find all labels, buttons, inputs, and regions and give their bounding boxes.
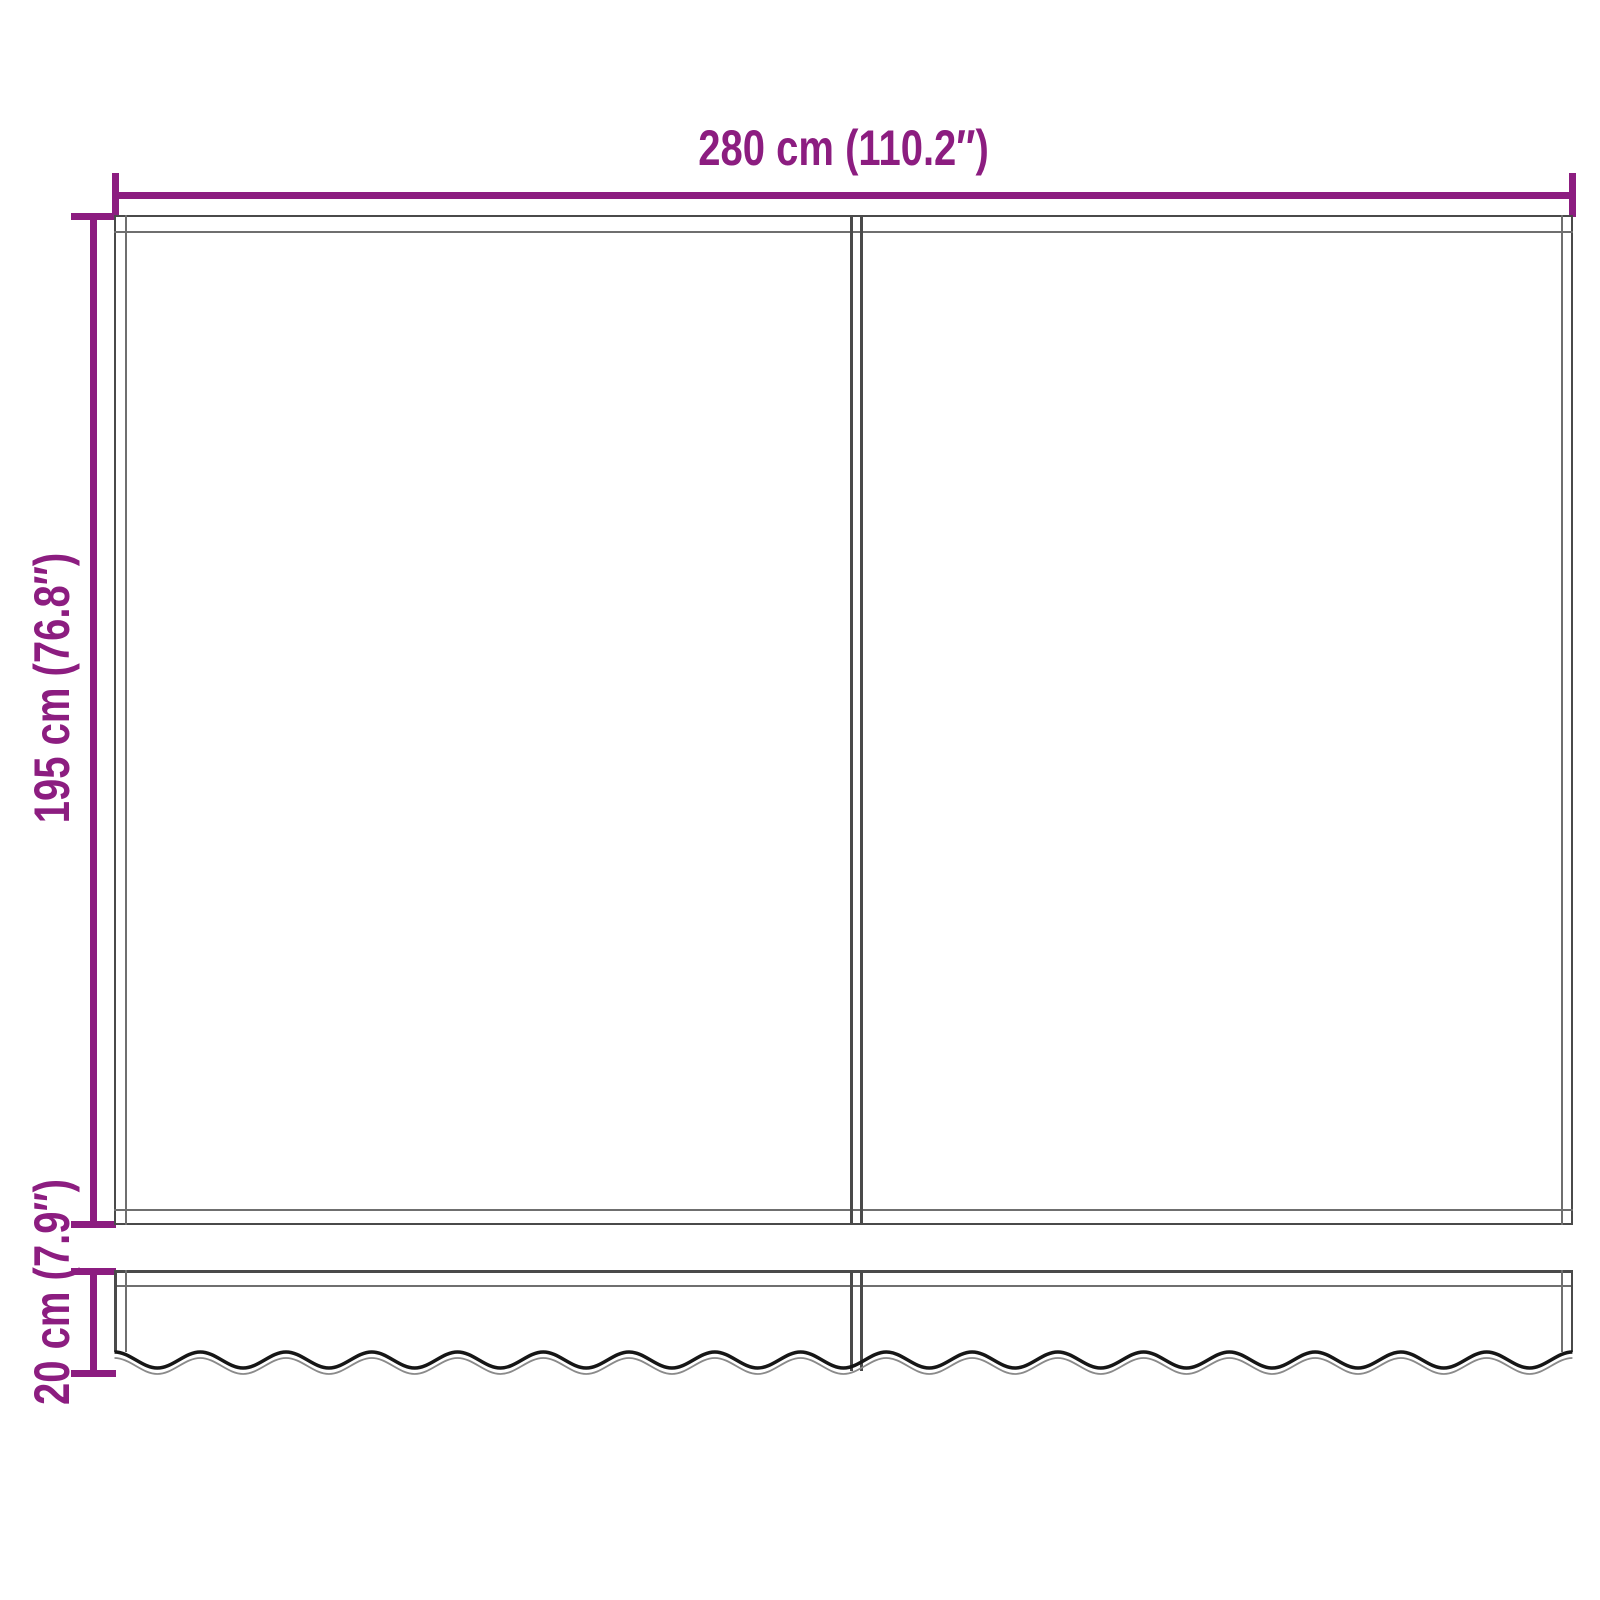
fabric-panel-hem-top [114, 231, 1573, 233]
scallop-edge-outer-line [115, 1352, 1573, 1368]
width-dimension-label: 280 cm (110.2″) [114, 118, 1573, 178]
valance-dimension-line [90, 1272, 97, 1373]
valance-dimension-cap-bottom [71, 1370, 116, 1377]
height-dimension-cap-top [71, 213, 116, 220]
fabric-panel-center-seam-left [850, 215, 853, 1225]
fabric-panel-outline [114, 215, 1573, 1225]
fabric-panel-hem-right [1561, 215, 1563, 1225]
height-dimension-line [90, 216, 97, 1225]
width-dimension-line [116, 192, 1572, 199]
width-dimension-cap-left [112, 173, 119, 217]
fabric-panel-center-seam-right [860, 215, 863, 1225]
valance-top-hem [114, 1285, 1573, 1287]
valance-dimension-label: 20 cm (7.9″) [27, 1151, 77, 1433]
width-dimension-cap-right [1569, 173, 1576, 217]
height-dimension-label: 195 cm (76.8″) [27, 519, 77, 857]
valance-dimension-cap-top [71, 1268, 116, 1275]
fabric-panel-hem-bottom [114, 1209, 1573, 1211]
awning-fabric-dimension-diagram: 280 cm (110.2″) 195 cm (76.8″) 20 cm (7.… [0, 0, 1600, 1600]
height-dimension-text: 195 cm (76.8″) [27, 553, 77, 823]
fabric-panel-hem-left [125, 215, 127, 1225]
valance-top-edge [114, 1270, 1573, 1273]
valance-scalloped-edge [114, 1340, 1573, 1388]
valance-dimension-text: 20 cm (7.9″) [27, 1179, 77, 1405]
width-dimension-text: 280 cm (110.2″) [698, 123, 988, 173]
